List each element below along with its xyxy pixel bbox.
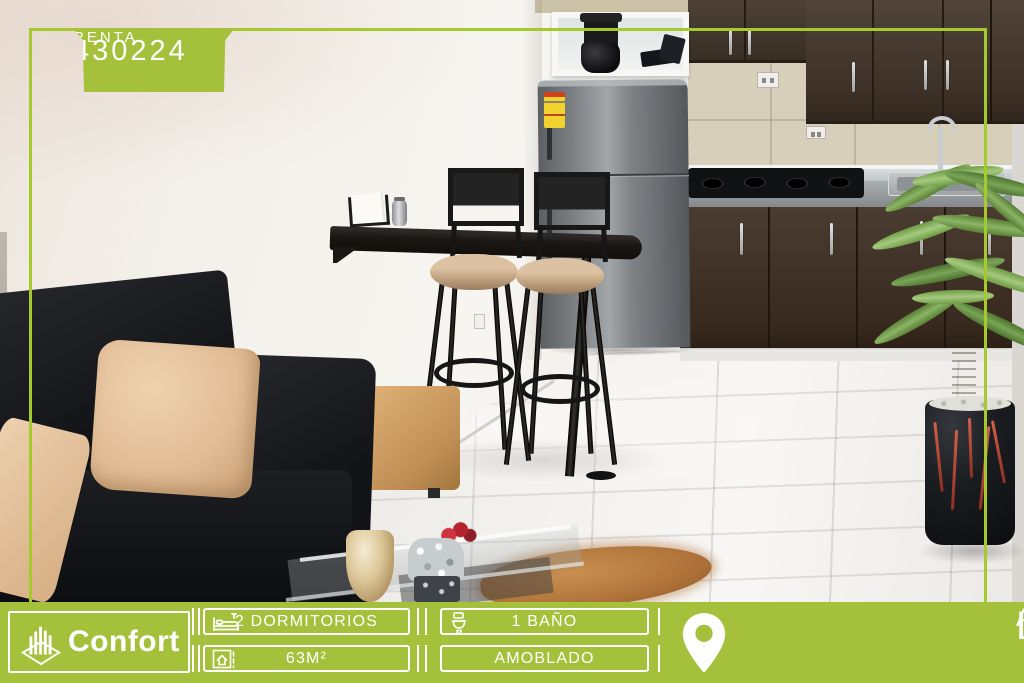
feature-label: 63M² xyxy=(205,647,408,670)
divider xyxy=(417,645,419,672)
divider xyxy=(425,645,427,672)
building-logo-icon xyxy=(18,619,64,667)
feature-label: 2 DORMITORIOS xyxy=(205,610,408,633)
brand-logo-box: Confort xyxy=(8,611,190,673)
listing-badge: 430224 RENTA xyxy=(73,28,235,92)
divider xyxy=(658,645,660,672)
feature-area: 63M² xyxy=(203,645,410,672)
feature-label: 1 BAÑO xyxy=(442,610,647,633)
divider xyxy=(192,645,194,672)
feature-bathrooms: 1 BAÑO xyxy=(440,608,649,635)
brand-name: Confort xyxy=(68,625,180,659)
divider xyxy=(417,608,419,635)
divider xyxy=(198,608,200,635)
footer-bar: Confort 2 DORMITORIOS 63M² xyxy=(0,602,1024,683)
map-pin-icon xyxy=(678,610,730,676)
divider xyxy=(425,608,427,635)
cabinet-seam xyxy=(990,0,992,121)
feature-furnished: AMOBLADO xyxy=(440,645,649,672)
divider xyxy=(198,645,200,672)
divider xyxy=(192,608,194,635)
property-name: LOMA DEL INDIO xyxy=(1016,604,1024,683)
pot-paint-streak xyxy=(991,420,1006,483)
feature-bedrooms: 2 DORMITORIOS xyxy=(203,608,410,635)
feature-label: AMOBLADO xyxy=(442,647,647,670)
divider xyxy=(658,608,660,635)
photo-frame-border xyxy=(29,28,987,628)
listing-card: 430224 RENTA Confort xyxy=(0,0,1024,683)
